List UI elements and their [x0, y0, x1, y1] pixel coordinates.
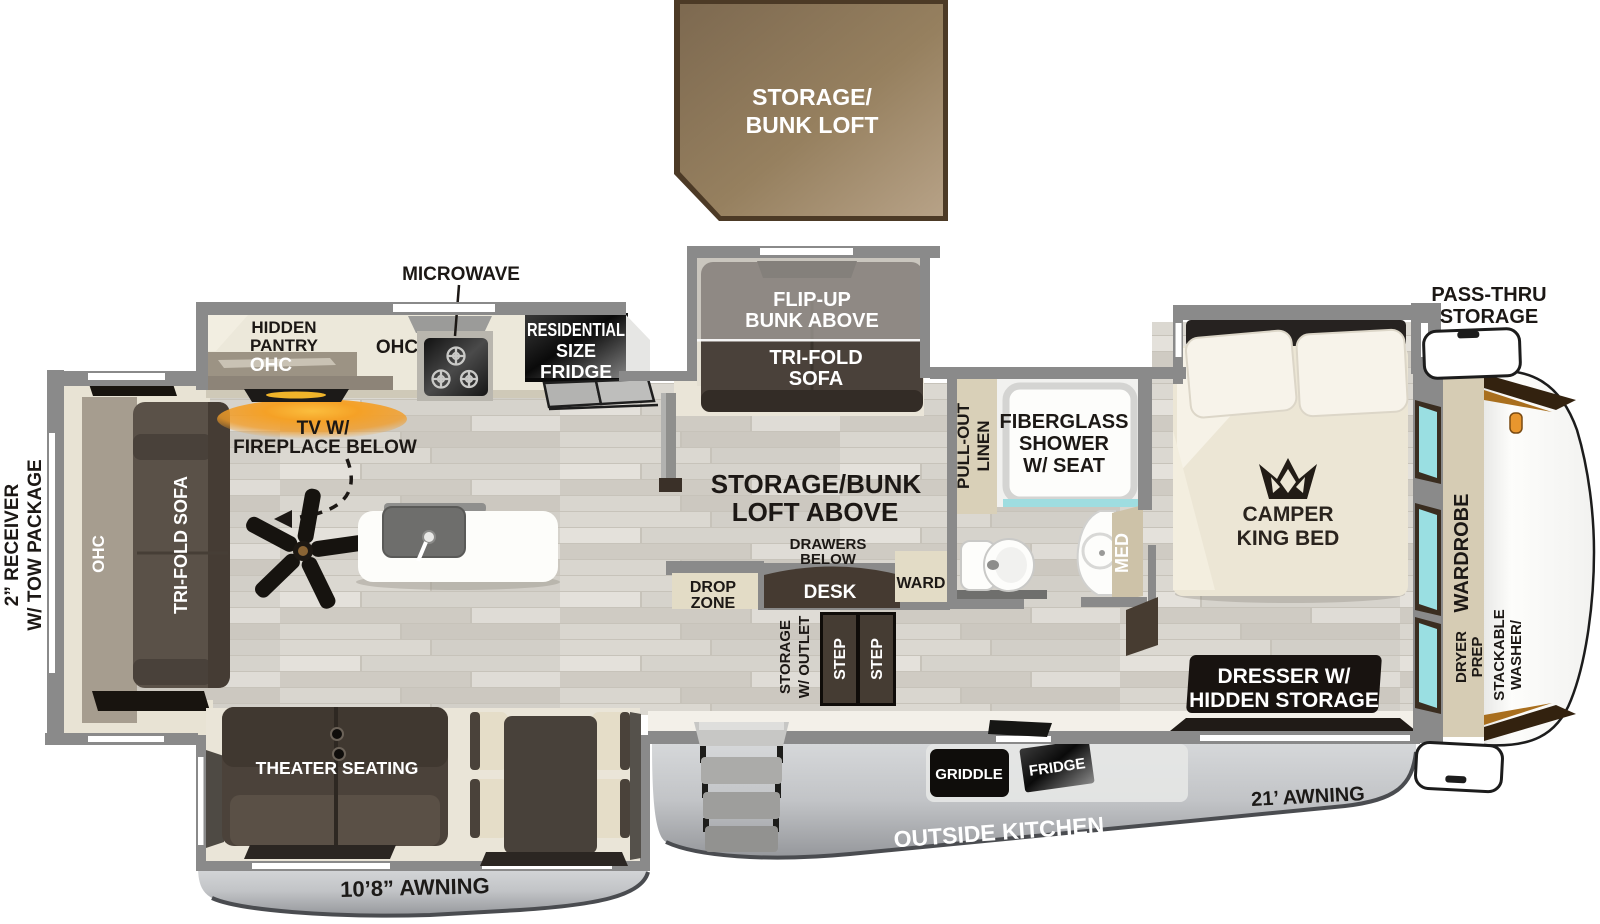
svg-text:LINEN: LINEN [974, 421, 993, 472]
svg-text:FLIP-UP: FLIP-UP [773, 289, 851, 311]
svg-text:WASHER/: WASHER/ [1508, 619, 1525, 690]
svg-text:CAMPER: CAMPER [1242, 503, 1333, 526]
svg-text:TRI-FOLD SOFA: TRI-FOLD SOFA [171, 476, 191, 614]
svg-text:HIDDEN STORAGE: HIDDEN STORAGE [1189, 689, 1379, 712]
svg-text:THEATER SEATING: THEATER SEATING [256, 758, 419, 778]
svg-text:BUNK ABOVE: BUNK ABOVE [745, 310, 879, 332]
svg-text:PREP: PREP [1469, 637, 1486, 678]
svg-text:TRI-FOLD: TRI-FOLD [769, 347, 862, 369]
svg-text:MICROWAVE: MICROWAVE [402, 264, 520, 285]
svg-text:OHC: OHC [250, 355, 293, 376]
svg-text:OHC: OHC [376, 337, 419, 358]
svg-text:W/ TOW PACKAGE: W/ TOW PACKAGE [25, 459, 46, 630]
svg-text:HIDDEN: HIDDEN [251, 318, 316, 337]
svg-text:DROP: DROP [690, 579, 737, 596]
svg-text:STORAGE: STORAGE [777, 620, 794, 694]
svg-text:PASS-THRU: PASS-THRU [1431, 284, 1546, 306]
svg-text:SHOWER: SHOWER [1019, 433, 1110, 455]
svg-text:KING BED: KING BED [1237, 527, 1340, 550]
svg-text:STORAGE/: STORAGE/ [752, 84, 872, 110]
svg-text:FIBERGLASS: FIBERGLASS [1000, 411, 1129, 433]
svg-text:FRIDGE: FRIDGE [540, 362, 612, 382]
svg-text:DESK: DESK [804, 582, 857, 603]
svg-text:STORAGE/BUNK: STORAGE/BUNK [711, 469, 922, 499]
svg-text:STORAGE: STORAGE [1440, 306, 1539, 328]
svg-text:GRIDDLE: GRIDDLE [935, 766, 1003, 783]
svg-text:W/ SEAT: W/ SEAT [1023, 455, 1105, 477]
svg-text:10’8” AWNING: 10’8” AWNING [340, 873, 490, 902]
svg-text:STEP: STEP [869, 638, 886, 680]
svg-text:TV W/: TV W/ [297, 418, 350, 439]
svg-text:DRYER: DRYER [1453, 631, 1470, 683]
svg-text:RESIDENTIAL: RESIDENTIAL [527, 320, 625, 340]
svg-text:SOFA: SOFA [789, 368, 843, 390]
svg-text:LOFT ABOVE: LOFT ABOVE [732, 497, 899, 527]
svg-text:OHC: OHC [89, 535, 108, 573]
svg-text:BELOW: BELOW [800, 551, 857, 568]
svg-text:WARD: WARD [897, 575, 946, 592]
svg-text:W/ OUTLET: W/ OUTLET [796, 616, 813, 699]
svg-text:FIREPLACE BELOW: FIREPLACE BELOW [233, 437, 417, 458]
svg-text:STACKABLE: STACKABLE [1491, 609, 1508, 700]
svg-text:2” RECEIVER: 2” RECEIVER [2, 483, 23, 606]
svg-text:STEP: STEP [832, 638, 849, 680]
svg-text:SIZE: SIZE [556, 341, 596, 361]
svg-text:BUNK LOFT: BUNK LOFT [746, 112, 879, 138]
svg-text:MED: MED [1112, 533, 1132, 573]
svg-text:ZONE: ZONE [691, 595, 736, 612]
svg-text:WARDROBE: WARDROBE [1451, 494, 1473, 613]
svg-text:DRESSER W/: DRESSER W/ [1217, 665, 1350, 688]
